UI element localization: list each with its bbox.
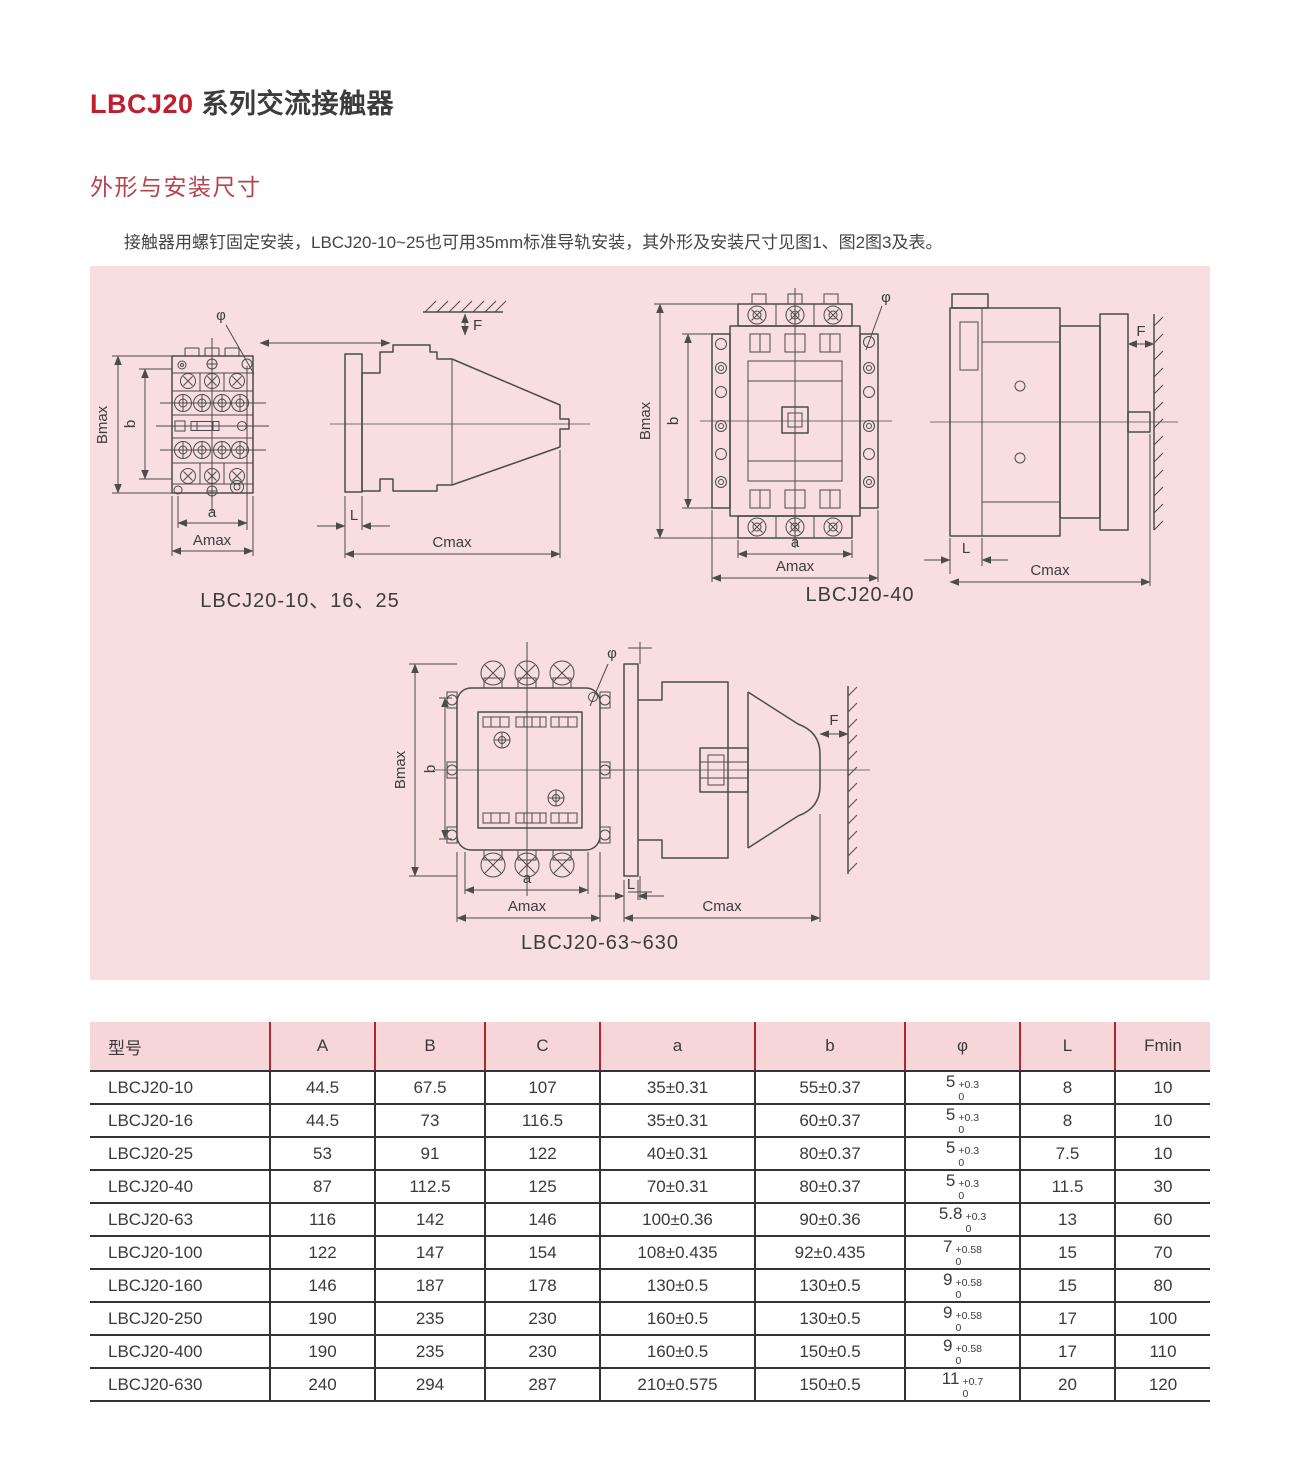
page-title: LBCJ20系列交流接触器 <box>90 82 394 121</box>
model-cell: LBCJ20-16 <box>90 1104 270 1137</box>
value-cell: 5+0.30 <box>905 1071 1020 1104</box>
value-cell: 80 <box>1115 1269 1210 1302</box>
value-cell: 150±0.5 <box>755 1335 905 1368</box>
value-cell: 91 <box>375 1137 485 1170</box>
model-cell: LBCJ20-40 <box>90 1170 270 1203</box>
figure2-caption: LBCJ20-40 <box>735 584 985 607</box>
value-cell: 230 <box>485 1302 600 1335</box>
value-cell: 44.5 <box>270 1104 375 1137</box>
figure1-caption: LBCJ20-10、16、25 <box>145 584 455 613</box>
value-cell: 92±0.435 <box>755 1236 905 1269</box>
value-cell: 60 <box>1115 1203 1210 1236</box>
value-cell: 17 <box>1020 1302 1115 1335</box>
value-cell: 122 <box>485 1137 600 1170</box>
dim-label-cmax: Cmax <box>432 534 472 551</box>
value-cell: 160±0.5 <box>600 1335 755 1368</box>
value-cell: 7+0.580 <box>905 1236 1020 1269</box>
value-cell: 30 <box>1115 1170 1210 1203</box>
model-cell: LBCJ20-250 <box>90 1302 270 1335</box>
table-row: LBCJ20-630240294287210±0.575150±0.511+0.… <box>90 1368 1210 1401</box>
value-cell: 240 <box>270 1368 375 1401</box>
value-cell: 80±0.37 <box>755 1137 905 1170</box>
value-cell: 55±0.37 <box>755 1071 905 1104</box>
value-cell: 116 <box>270 1203 375 1236</box>
model-cell: LBCJ20-63 <box>90 1203 270 1236</box>
value-cell: 100±0.36 <box>600 1203 755 1236</box>
table-row: LBCJ20-100122147154108±0.43592±0.4357+0.… <box>90 1236 1210 1269</box>
catalog-page: LBCJ20系列交流接触器 外形与安装尺寸 接触器用螺钉固定安装，LBCJ20-… <box>0 0 1300 1473</box>
value-cell: 20 <box>1020 1368 1115 1401</box>
figure3-caption: LBCJ20-63~630 <box>470 932 730 955</box>
column-header-Fmin: Fmin <box>1115 1022 1210 1071</box>
dim-label-phi: φ <box>881 289 891 306</box>
value-cell: 73 <box>375 1104 485 1137</box>
value-cell: 35±0.31 <box>600 1104 755 1137</box>
value-cell: 5+0.30 <box>905 1104 1020 1137</box>
value-cell: 190 <box>270 1302 375 1335</box>
drawings-panel: Bmax b a Amax φ F L <box>90 266 1210 980</box>
value-cell: 35±0.31 <box>600 1071 755 1104</box>
figure-lbcj20-10-16-25: Bmax b a Amax φ F L <box>90 288 630 588</box>
value-cell: 150±0.5 <box>755 1368 905 1401</box>
dim-label-amax: Amax <box>776 558 815 575</box>
dim-label-amax: Amax <box>508 898 547 915</box>
value-cell: 116.5 <box>485 1104 600 1137</box>
column-header-L: L <box>1020 1022 1115 1071</box>
model-cell: LBCJ20-10 <box>90 1071 270 1104</box>
column-header-model: 型号 <box>90 1022 270 1071</box>
dim-label-f: F <box>1136 323 1145 340</box>
value-cell: 235 <box>375 1335 485 1368</box>
value-cell: 110 <box>1115 1335 1210 1368</box>
value-cell: 60±0.37 <box>755 1104 905 1137</box>
column-header-phi: φ <box>905 1022 1020 1071</box>
value-cell: 8 <box>1020 1104 1115 1137</box>
value-cell: 87 <box>270 1170 375 1203</box>
table-row: LBCJ20-25539112240±0.3180±0.375+0.307.51… <box>90 1137 1210 1170</box>
value-cell: 70 <box>1115 1236 1210 1269</box>
value-cell: 130±0.5 <box>755 1302 905 1335</box>
value-cell: 230 <box>485 1335 600 1368</box>
dimension-table: 型号 A B C a b φ L Fmin LBCJ20-1044.567.51… <box>90 1022 1210 1402</box>
value-cell: 210±0.575 <box>600 1368 755 1401</box>
column-header-a: a <box>600 1022 755 1071</box>
value-cell: 70±0.31 <box>600 1170 755 1203</box>
value-cell: 107 <box>485 1071 600 1104</box>
value-cell: 17 <box>1020 1335 1115 1368</box>
value-cell: 90±0.36 <box>755 1203 905 1236</box>
value-cell: 100 <box>1115 1302 1210 1335</box>
value-cell: 178 <box>485 1269 600 1302</box>
dim-label-b: b <box>422 765 439 773</box>
value-cell: 146 <box>485 1203 600 1236</box>
dim-label-a: a <box>208 504 217 521</box>
value-cell: 187 <box>375 1269 485 1302</box>
spec-table-body: LBCJ20-1044.567.510735±0.3155±0.375+0.30… <box>90 1071 1210 1401</box>
value-cell: 160±0.5 <box>600 1302 755 1335</box>
intro-paragraph: 接触器用螺钉固定安装，LBCJ20-10~25也可用35mm标准导轨安装，其外形… <box>90 231 1200 255</box>
value-cell: 130±0.5 <box>755 1269 905 1302</box>
dim-label-bmax: Bmax <box>94 405 111 444</box>
dim-label-f: F <box>829 712 838 729</box>
dim-label-l: L <box>627 876 635 893</box>
model-cell: LBCJ20-400 <box>90 1335 270 1368</box>
dim-label-l: L <box>962 540 970 557</box>
value-cell: 53 <box>270 1137 375 1170</box>
dim-label-b: b <box>122 420 139 428</box>
table-header-row: 型号 A B C a b φ L Fmin <box>90 1022 1210 1071</box>
value-cell: 108±0.435 <box>600 1236 755 1269</box>
value-cell: 5.8+0.30 <box>905 1203 1020 1236</box>
dim-label-phi: φ <box>216 307 226 324</box>
model-cell: LBCJ20-100 <box>90 1236 270 1269</box>
value-cell: 67.5 <box>375 1071 485 1104</box>
value-cell: 80±0.37 <box>755 1170 905 1203</box>
value-cell: 11+0.70 <box>905 1368 1020 1401</box>
dim-label-a: a <box>791 534 800 551</box>
dim-label-f: F <box>473 317 482 334</box>
value-cell: 9+0.580 <box>905 1269 1020 1302</box>
value-cell: 294 <box>375 1368 485 1401</box>
table-row: LBCJ20-160146187178130±0.5130±0.59+0.580… <box>90 1269 1210 1302</box>
dim-label-bmax: Bmax <box>392 750 409 789</box>
table-row: LBCJ20-1644.573116.535±0.3160±0.375+0.30… <box>90 1104 1210 1137</box>
value-cell: 120 <box>1115 1368 1210 1401</box>
value-cell: 125 <box>485 1170 600 1203</box>
table-row: LBCJ20-63116142146100±0.3690±0.365.8+0.3… <box>90 1203 1210 1236</box>
model-cell: LBCJ20-630 <box>90 1368 270 1401</box>
column-header-C: C <box>485 1022 600 1071</box>
value-cell: 112.5 <box>375 1170 485 1203</box>
table-row: LBCJ20-250190235230160±0.5130±0.59+0.580… <box>90 1302 1210 1335</box>
column-header-A: A <box>270 1022 375 1071</box>
value-cell: 8 <box>1020 1071 1115 1104</box>
value-cell: 235 <box>375 1302 485 1335</box>
value-cell: 142 <box>375 1203 485 1236</box>
dim-label-amax: Amax <box>193 532 232 549</box>
value-cell: 190 <box>270 1335 375 1368</box>
value-cell: 7.5 <box>1020 1137 1115 1170</box>
column-header-B: B <box>375 1022 485 1071</box>
dim-label-b: b <box>665 417 682 425</box>
value-cell: 130±0.5 <box>600 1269 755 1302</box>
table-row: LBCJ20-1044.567.510735±0.3155±0.375+0.30… <box>90 1071 1210 1104</box>
section-heading: 外形与安装尺寸 <box>90 168 262 202</box>
value-cell: 10 <box>1115 1071 1210 1104</box>
value-cell: 5+0.30 <box>905 1137 1020 1170</box>
value-cell: 11.5 <box>1020 1170 1115 1203</box>
dim-label-phi: φ <box>607 645 617 662</box>
value-cell: 154 <box>485 1236 600 1269</box>
dim-label-bmax: Bmax <box>637 401 654 440</box>
series-code: LBCJ20 <box>90 89 194 119</box>
value-cell: 40±0.31 <box>600 1137 755 1170</box>
value-cell: 15 <box>1020 1269 1115 1302</box>
table-row: LBCJ20-4087112.512570±0.3180±0.375+0.301… <box>90 1170 1210 1203</box>
dim-label-cmax: Cmax <box>702 898 742 915</box>
figure-lbcj20-40: Bmax b a Amax φ F <box>630 286 1210 606</box>
dim-label-cmax: Cmax <box>1030 562 1070 579</box>
value-cell: 13 <box>1020 1203 1115 1236</box>
value-cell: 147 <box>375 1236 485 1269</box>
value-cell: 9+0.580 <box>905 1335 1020 1368</box>
table-row: LBCJ20-400190235230160±0.5150±0.59+0.580… <box>90 1335 1210 1368</box>
value-cell: 122 <box>270 1236 375 1269</box>
column-header-b: b <box>755 1022 905 1071</box>
dim-label-a: a <box>523 870 532 887</box>
figure-lbcj20-63-630: Bmax b a Amax φ F <box>350 634 970 934</box>
value-cell: 15 <box>1020 1236 1115 1269</box>
value-cell: 146 <box>270 1269 375 1302</box>
value-cell: 5+0.30 <box>905 1170 1020 1203</box>
series-name: 系列交流接触器 <box>202 89 395 119</box>
value-cell: 10 <box>1115 1137 1210 1170</box>
model-cell: LBCJ20-160 <box>90 1269 270 1302</box>
value-cell: 287 <box>485 1368 600 1401</box>
value-cell: 9+0.580 <box>905 1302 1020 1335</box>
value-cell: 10 <box>1115 1104 1210 1137</box>
dim-label-l: L <box>350 507 358 524</box>
value-cell: 44.5 <box>270 1071 375 1104</box>
model-cell: LBCJ20-25 <box>90 1137 270 1170</box>
